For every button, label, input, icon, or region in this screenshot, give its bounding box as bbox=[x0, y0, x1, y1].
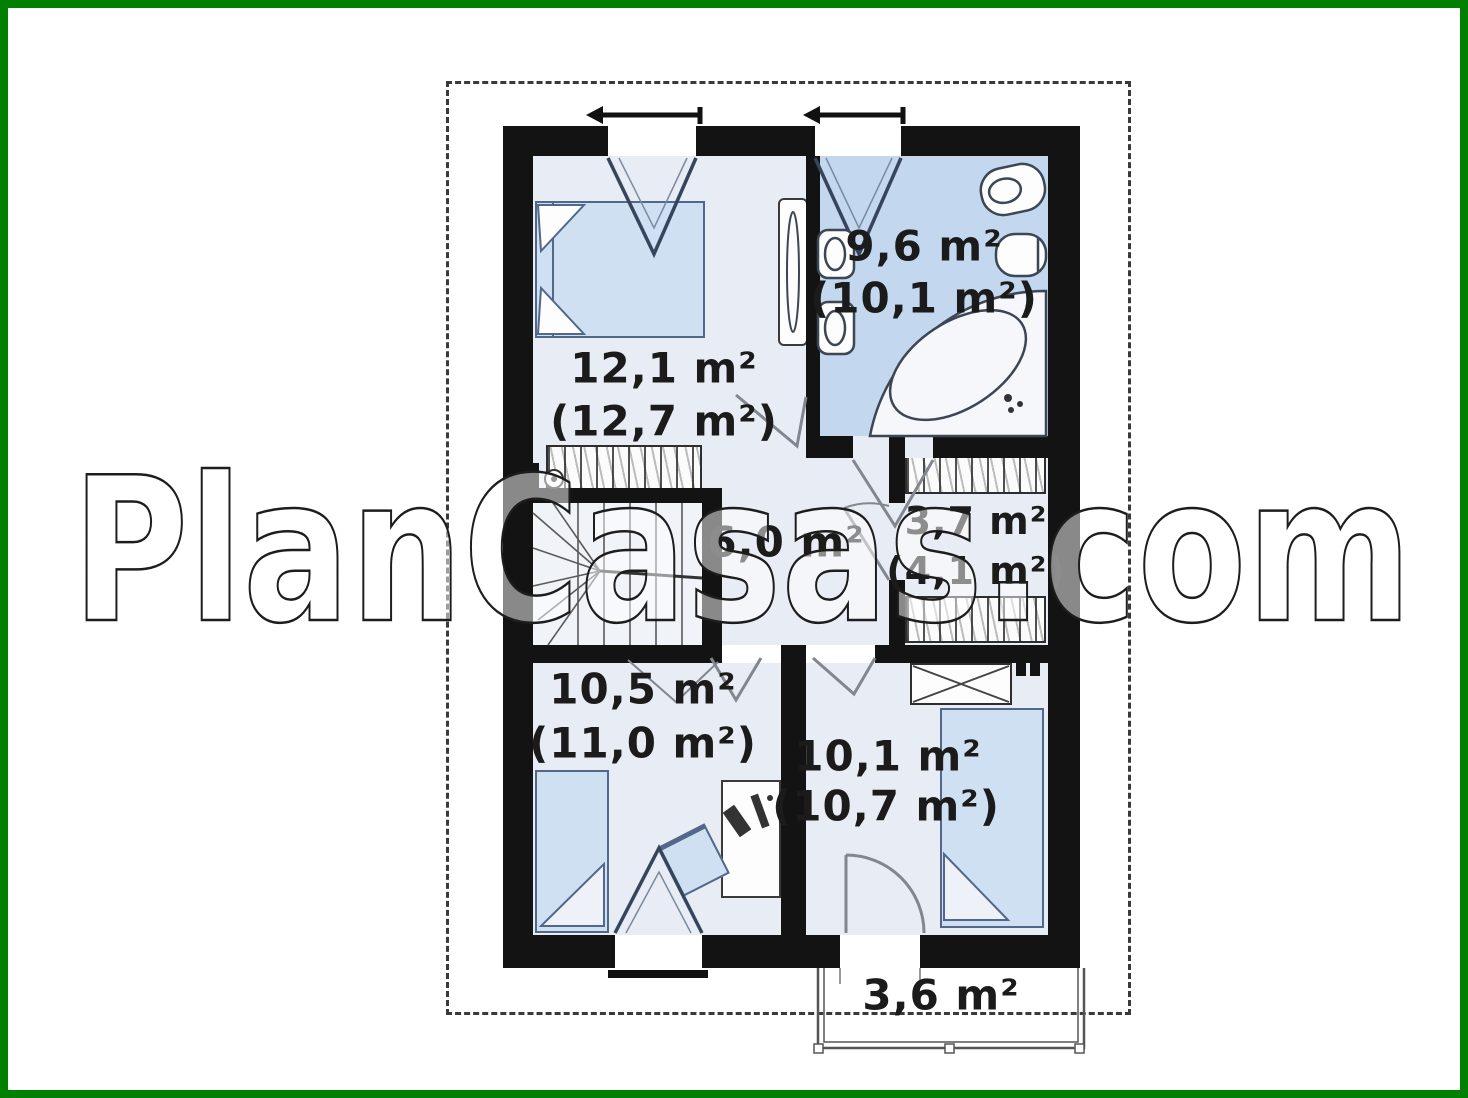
label-bedroom-top-gross: (12,7 m²) bbox=[550, 397, 778, 446]
balcony-door-opening bbox=[840, 935, 920, 968]
closet-shelf-bottom bbox=[905, 596, 1046, 643]
wall-hall-bottom bbox=[503, 645, 708, 663]
label-bedroom-left-gross: (11,0 m²) bbox=[529, 719, 757, 768]
label-bathroom-gross: (10,1 m²) bbox=[810, 274, 1038, 323]
label-bedroom-top-area: 12,1 m² bbox=[570, 344, 757, 393]
label-bedroom-right-gross: (10,7 m²) bbox=[772, 782, 1000, 831]
wall-closet-bottom bbox=[875, 645, 1048, 663]
label-hall-area: 6,0 m² bbox=[707, 518, 864, 567]
label-closet-gross: (4,1 m²) bbox=[886, 549, 1066, 593]
wall-bottom bbox=[503, 935, 1080, 968]
label-bedroom-left-area: 10,5 m² bbox=[549, 665, 736, 714]
label-bathroom-area: 9,6 m² bbox=[845, 222, 1002, 271]
bedroom-doorway-floor bbox=[722, 476, 806, 503]
single-bed-left bbox=[535, 770, 609, 933]
wall-stub-b bbox=[1030, 663, 1040, 676]
wall-stub-a bbox=[1016, 663, 1026, 676]
wall-stair-stub bbox=[509, 463, 539, 501]
crossed-dresser bbox=[910, 663, 1012, 705]
label-closet-area: 3,7 m² bbox=[905, 499, 1048, 543]
stairwell-floor bbox=[533, 503, 702, 645]
roof-window-opening-top-right bbox=[815, 126, 901, 156]
floor-plan: 12,1 m² (12,7 m²) 9,6 m² (10,1 m²) 3,7 m… bbox=[0, 0, 1468, 1098]
label-bedroom-right-area: 10,1 m² bbox=[794, 732, 981, 781]
wall-left bbox=[503, 126, 533, 968]
wall-right bbox=[1048, 126, 1080, 968]
radiator bbox=[778, 198, 808, 346]
roof-window-opening-top-left bbox=[608, 126, 696, 156]
double-bed bbox=[535, 201, 705, 338]
roof-window-opening-bottom bbox=[615, 935, 702, 968]
wall-stair-right bbox=[702, 488, 722, 663]
wall-top bbox=[503, 126, 1080, 156]
label-balcony-area: 3,6 m² bbox=[862, 971, 1019, 1020]
